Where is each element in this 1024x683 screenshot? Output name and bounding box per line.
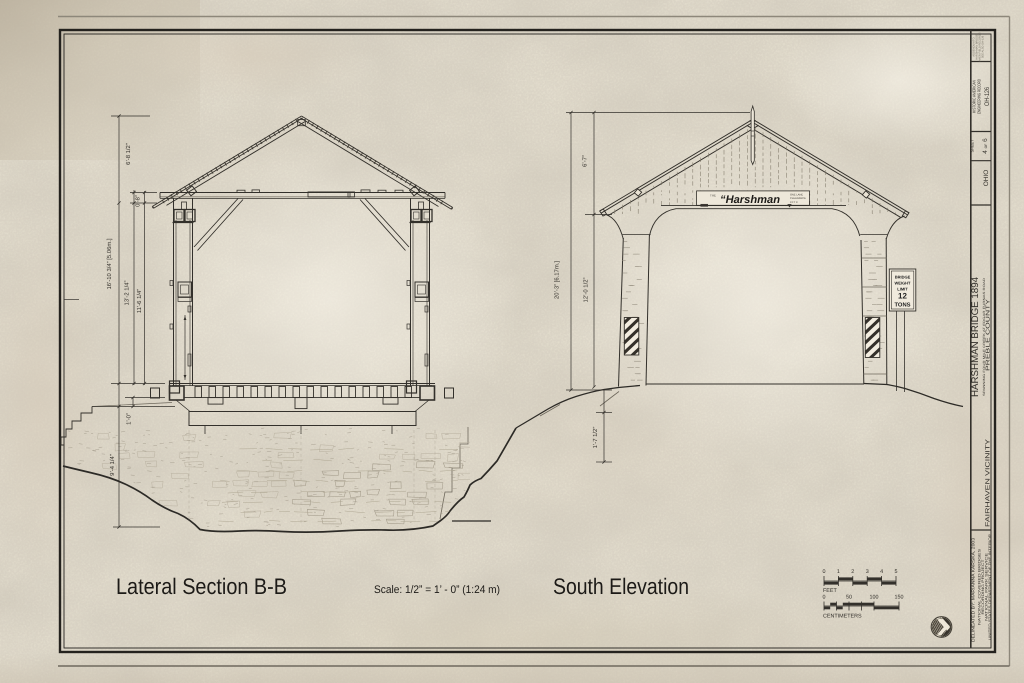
svg-text:OH-126: OH-126 [984, 87, 991, 106]
svg-text:2: 2 [851, 569, 854, 575]
svg-text:9 FT 9: 9 FT 9 [790, 201, 798, 204]
svg-text:11’-6 1/4”: 11’-6 1/4” [136, 289, 143, 313]
svg-text:PREBLE COUNTY: PREBLE COUNTY [986, 299, 992, 371]
svg-text:6’-8 1/2”: 6’-8 1/2” [125, 143, 132, 165]
svg-text:BRIDGE: BRIDGE [895, 275, 911, 280]
svg-text:SEE ALSO OH-126: SEE ALSO OH-126 [982, 35, 985, 58]
svg-text:1: 1 [837, 569, 840, 575]
svg-text:0: 0 [823, 569, 826, 575]
svg-text:3: 3 [866, 569, 869, 575]
svg-text:9’-4 1/4”: 9’-4 1/4” [109, 454, 116, 476]
svg-text:16’-10 3/4” [5.06m.]: 16’-10 3/4” [5.06m.] [106, 238, 113, 289]
svg-text:ONE LANE: ONE LANE [790, 194, 803, 197]
svg-text:CENTIMETERS: CENTIMETERS [823, 614, 862, 620]
svg-text:100: 100 [870, 594, 879, 600]
svg-text:DELINEATED BY: MARIANNA KARSK: DELINEATED BY: MARIANNA KARSKA, 2003 [970, 537, 975, 642]
svg-text:THE: THE [710, 194, 716, 198]
svg-text:50: 50 [846, 594, 852, 600]
svg-text:UNITED STATES DEPARTMENT OF TH: UNITED STATES DEPARTMENT OF THE INTERIOR [988, 534, 992, 640]
svg-text:4: 4 [880, 569, 883, 575]
svg-text:WEIGHT: WEIGHT [895, 281, 912, 286]
svg-text:ENGINEERING RECORD: ENGINEERING RECORD [977, 79, 982, 114]
svg-text:12’-0 1/2”: 12’-0 1/2” [583, 278, 590, 303]
svg-text:6’-7”: 6’-7” [582, 155, 589, 167]
svg-text:20’-3” [6.17m.]: 20’-3” [6.17m.] [554, 261, 561, 299]
svg-text:CLEARANCE: CLEARANCE [790, 197, 806, 200]
svg-text:HARSHMAN BRIDGE 1894: HARSHMAN BRIDGE 1894 [970, 277, 981, 397]
svg-text:OHIO: OHIO [983, 170, 990, 187]
svg-text:FAIRHAVEN VICINITY: FAIRHAVEN VICINITY [984, 439, 991, 527]
svg-text:Scale: 1/2” = 1’ - 0” (1:24 m: Scale: 1/2” = 1’ - 0” (1:24 m) [374, 584, 500, 596]
svg-text:0’-8”: 0’-8” [135, 195, 142, 207]
svg-text:12: 12 [898, 292, 907, 301]
svg-text:South Elevation: South Elevation [553, 574, 689, 599]
svg-text:“Harshman: “Harshman [720, 194, 780, 206]
svg-text:150: 150 [895, 594, 904, 600]
svg-text:TONS: TONS [895, 302, 911, 309]
svg-text:SHEET: SHEET [971, 139, 975, 152]
svg-text:4 OF 6: 4 OF 6 [982, 138, 989, 154]
svg-text:1’-0”: 1’-0” [126, 413, 133, 425]
svg-text:FEET: FEET [823, 588, 837, 594]
svg-text:13’-2 1/4”: 13’-2 1/4” [124, 281, 131, 306]
svg-text:1’-7 1/2”: 1’-7 1/2” [592, 427, 599, 449]
svg-text:5: 5 [895, 569, 898, 575]
svg-text:0: 0 [823, 594, 826, 600]
svg-text:Lateral Section B-B: Lateral Section B-B [116, 574, 287, 599]
